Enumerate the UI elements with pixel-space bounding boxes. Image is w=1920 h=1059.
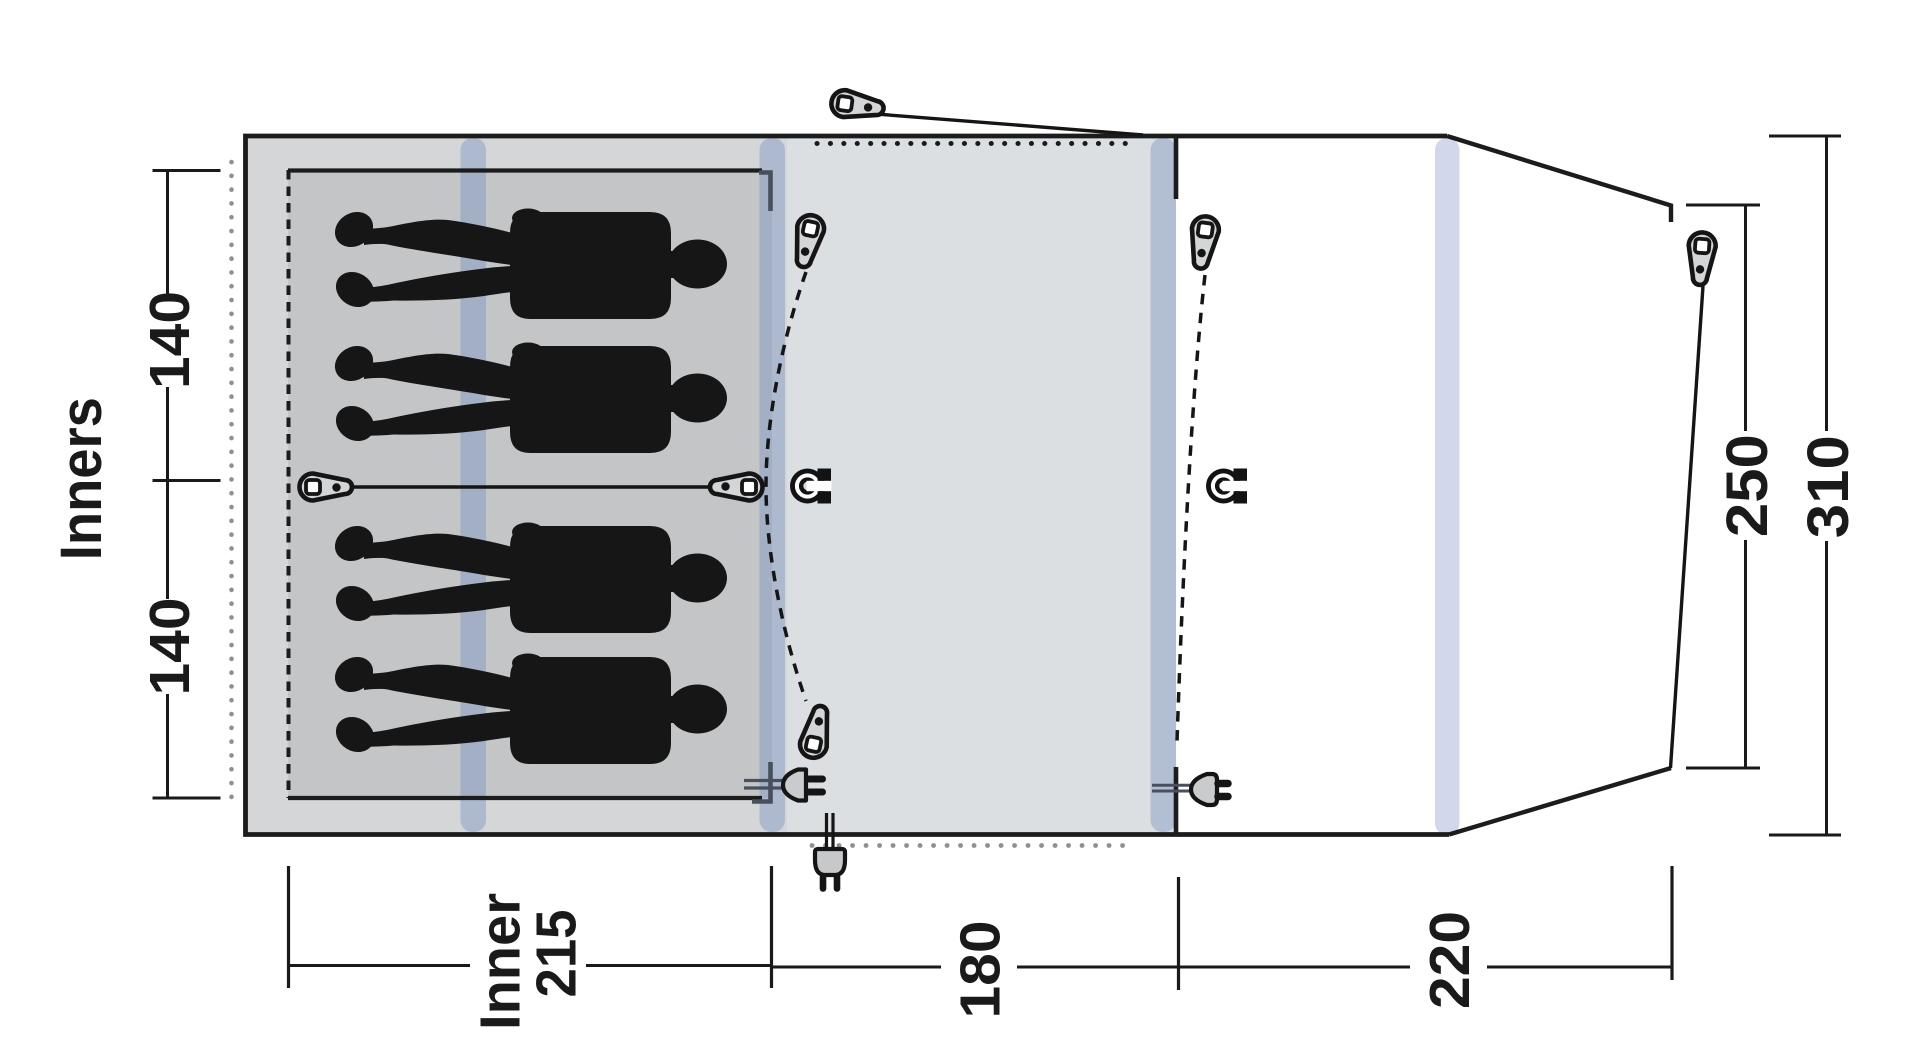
svg-text:140: 140 bbox=[138, 291, 202, 389]
svg-text:220: 220 bbox=[1418, 911, 1482, 1009]
svg-text:310: 310 bbox=[1796, 435, 1861, 538]
svg-text:215: 215 bbox=[525, 910, 589, 998]
svg-text:250: 250 bbox=[1715, 434, 1780, 537]
svg-text:140: 140 bbox=[138, 598, 202, 696]
svg-text:Inner: Inner bbox=[469, 893, 533, 1030]
svg-text:Inners: Inners bbox=[49, 397, 114, 560]
svg-text:180: 180 bbox=[949, 921, 1013, 1019]
